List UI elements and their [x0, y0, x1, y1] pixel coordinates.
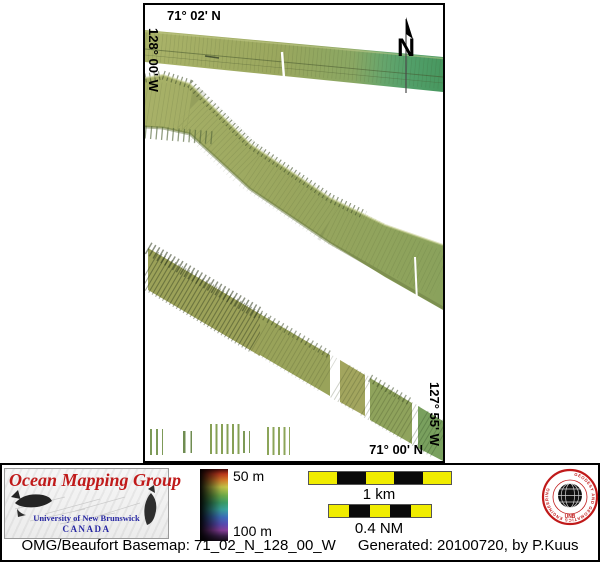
- scalebar-nm: [328, 504, 432, 518]
- scalebar-nm-label: 0.4 NM: [328, 520, 430, 537]
- bathymetry-swath-graphic: [145, 5, 443, 461]
- footer-legend-bar: Ocean Mapping Group University of New Br…: [0, 463, 600, 562]
- basemap-id-text: OMG/Beaufort Basemap: 71_02_N_128_00_W: [21, 537, 335, 554]
- depth-scale-top-label: 50 m: [233, 468, 264, 484]
- country-label: CANADA: [5, 524, 168, 534]
- unb-gge-seal: GEODESY AND GEOMATICS ENGINEERING UNB: [541, 468, 599, 526]
- university-label: University of New Brunswick: [5, 513, 168, 523]
- swath-bottom-patches: [150, 439, 290, 442]
- generated-text: Generated: 20100720, by P.Kuus: [358, 537, 579, 554]
- label-left-longitude: 128° 00' W: [146, 28, 161, 92]
- basemap-page: { "map": { "top_latitude": "71\u00b0 02'…: [0, 0, 600, 562]
- label-right-longitude: 127° 55' W: [427, 382, 442, 446]
- seal-unb-text: UNB: [565, 514, 576, 520]
- scalebar-km: [308, 471, 452, 485]
- omg-logo: Ocean Mapping Group University of New Br…: [4, 468, 169, 539]
- scalebar-km-label: 1 km: [308, 486, 450, 503]
- map-frame: 71° 02' N 128° 00' W 127° 55' W 71° 00' …: [143, 3, 445, 463]
- north-arrow-label: N: [391, 36, 421, 61]
- footer-caption: OMG/Beaufort Basemap: 71_02_N_128_00_W G…: [2, 537, 598, 554]
- depth-colorbar: [200, 469, 228, 541]
- label-top-latitude: 71° 02' N: [167, 8, 221, 23]
- globe-icon: [558, 484, 582, 508]
- label-bottom-latitude: 71° 00' N: [369, 442, 423, 457]
